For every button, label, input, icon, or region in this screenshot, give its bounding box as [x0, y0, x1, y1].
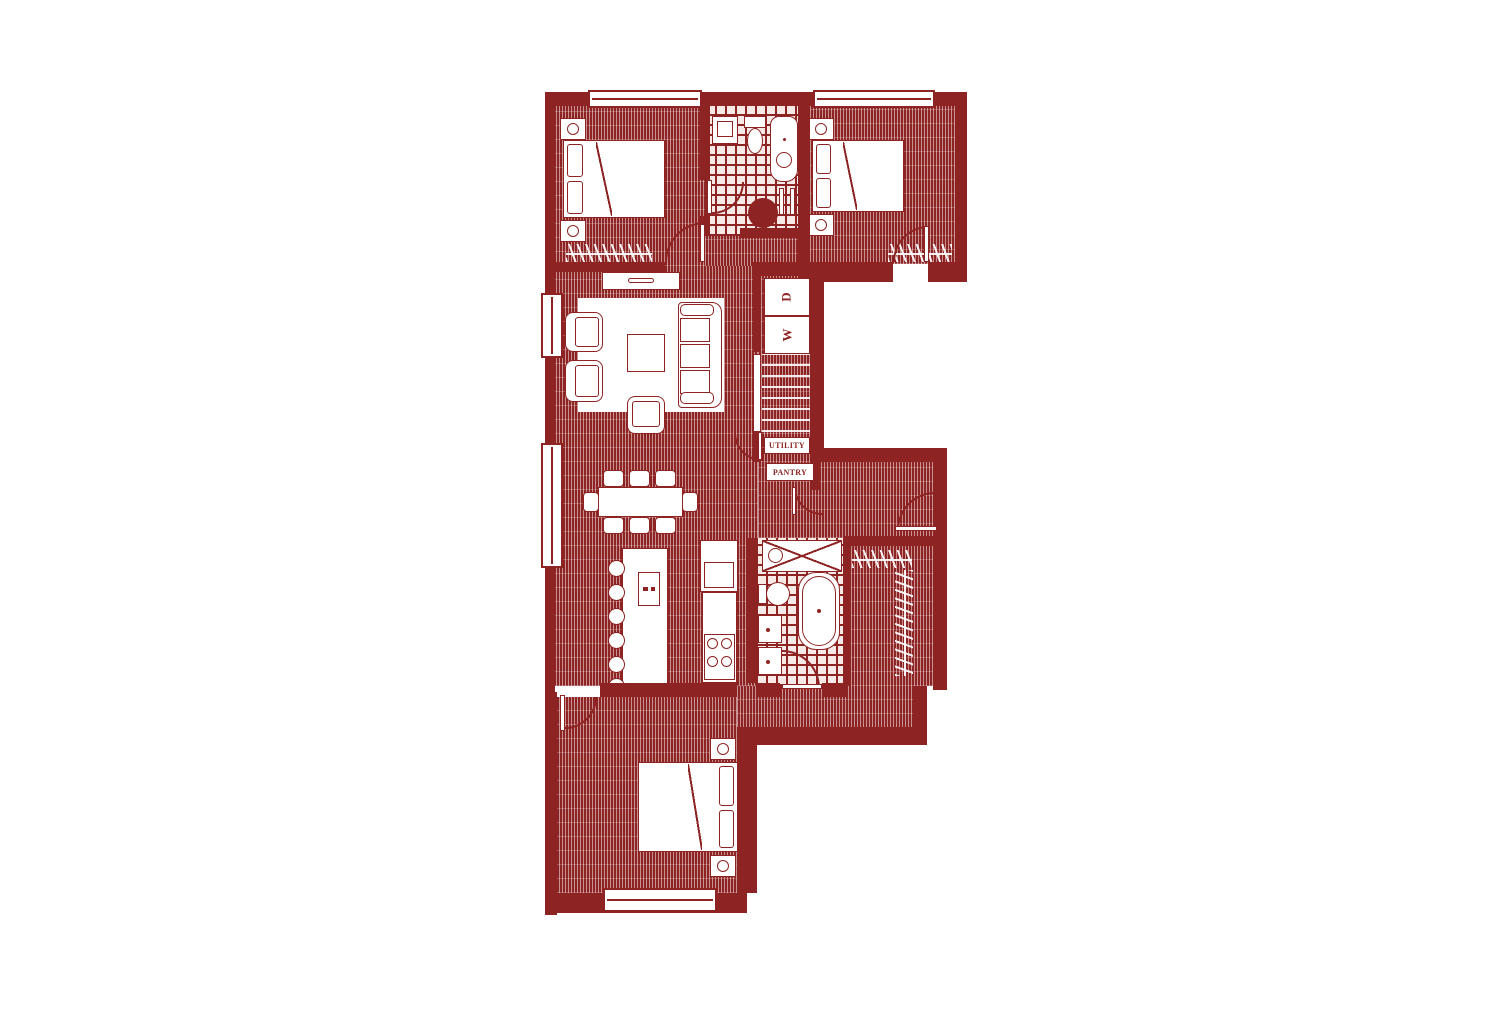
toilet-top-bowl	[747, 128, 763, 154]
wall-ensuite-bottom-a	[756, 683, 780, 697]
door-leaf-master	[560, 695, 565, 731]
coffee-table	[627, 334, 665, 372]
dining-chair-end-left	[583, 492, 599, 512]
burner-2	[721, 638, 732, 649]
lamp-icon	[815, 219, 827, 231]
bed-top-left-fold	[596, 142, 612, 216]
utility-label-box: UTILITY	[764, 437, 810, 454]
dining-chair-top-1	[603, 470, 624, 487]
sofa-cushion-3	[680, 370, 710, 394]
window-bedroom-top-left	[588, 90, 702, 108]
dining-chair-end-right	[682, 492, 698, 512]
wall-bath1-right	[798, 92, 810, 278]
pantry-label-box: PANTRY	[766, 463, 814, 481]
wall-kitchen-master-b	[600, 683, 737, 697]
sofa-cushion-2	[680, 344, 710, 368]
structural-column	[748, 198, 778, 228]
bathtub-top-faucet	[776, 152, 792, 168]
wall-bedroom2-right	[955, 92, 967, 282]
island-sink-tap	[643, 587, 648, 591]
nightstand-m-2	[710, 855, 736, 877]
bed-master-fold	[688, 764, 702, 850]
toilet-ensuite-bowl	[766, 582, 790, 606]
wall-kitchen-master-a	[545, 683, 552, 697]
island-sink-tap2	[651, 587, 655, 591]
floor-plan-canvas: D W UTILITY PANTRY	[0, 0, 1500, 1010]
dining-table	[598, 487, 683, 517]
bathtub-top-drain	[783, 138, 786, 141]
toilet-top-tank	[744, 116, 766, 128]
dining-chair-top-2	[629, 470, 650, 487]
bar-stool-2	[608, 584, 625, 601]
door-leaf-ensuite	[782, 684, 822, 689]
tub-drain	[817, 609, 821, 613]
shower-drain	[768, 548, 783, 563]
wall-bedroom2-bottom-a	[800, 262, 893, 282]
vanity-1-handle	[766, 628, 770, 632]
towel-rail-2	[790, 188, 795, 215]
dryer-label: D	[779, 292, 795, 301]
bar-stool-5	[608, 656, 625, 673]
armchair-1-seat	[575, 317, 599, 347]
bar-stool-4	[608, 632, 625, 649]
lamp-icon	[567, 123, 579, 135]
wall-corridor-bottom	[737, 727, 927, 745]
bathroom-top-sink-basin	[717, 121, 733, 137]
vanity-unit-1	[758, 615, 782, 643]
bed-master-pillow-2	[719, 810, 734, 848]
wall-bedroom2-bottom-b	[928, 262, 967, 282]
nightstand-tl-2	[560, 220, 586, 242]
fridge-inner	[704, 562, 734, 588]
sofa-armrest-bottom	[680, 392, 714, 404]
closet-rail-bedroom-top-left	[566, 244, 652, 262]
hall-closet-shelves	[762, 354, 810, 432]
bed-top-right-fold	[843, 142, 857, 210]
vanity-unit-2	[758, 647, 782, 675]
window-living-upper	[541, 293, 563, 358]
wall-hall-top	[753, 262, 812, 276]
dining-chair-bottom-1	[603, 517, 624, 534]
bathtub-top	[770, 116, 798, 182]
media-console-handle	[628, 278, 654, 283]
wall-corridor-top	[810, 448, 947, 462]
door-leaf-entry	[895, 526, 937, 531]
burner-3	[707, 656, 718, 667]
wall-bath1-bottom-nub	[740, 228, 805, 238]
walk-in-rail-top	[852, 550, 912, 568]
washer-label: W	[779, 329, 795, 342]
wall-wd-left-a	[753, 266, 761, 352]
bar-stool-1	[608, 560, 625, 577]
accent-chair-seat	[632, 401, 660, 427]
sofa-cushion-1	[680, 318, 710, 342]
door-leaf-bathroom-top	[707, 180, 712, 214]
vanity-2-handle	[766, 660, 770, 664]
bed-master-pillow-1	[719, 766, 734, 806]
wall-bath1-left-a	[700, 106, 710, 180]
nightstand-tl-1	[560, 118, 586, 140]
wall-right-lower	[933, 455, 947, 690]
wall-right-step	[913, 686, 927, 730]
washer-box: W	[764, 316, 810, 354]
wall-kitchen-ensuite	[746, 538, 758, 683]
nightstand-tr-1	[808, 118, 834, 140]
kitchen-island	[622, 548, 668, 690]
window-bedroom-top-right	[813, 90, 935, 108]
wall-master-right	[737, 727, 757, 893]
wall-bedroom1-bottom	[545, 262, 665, 272]
door-leaf-pantry	[792, 487, 796, 515]
wall-wd-right	[810, 282, 824, 452]
wall-left-master	[545, 692, 557, 915]
armchair-2-seat	[575, 365, 599, 397]
wall-ensuite-walkin	[843, 538, 851, 686]
bar-stool-3	[608, 608, 625, 625]
window-master-bedroom	[603, 888, 717, 912]
utility-label: UTILITY	[769, 441, 805, 450]
towel-rail-1	[779, 188, 784, 215]
bed-top-right-pillow-2	[816, 178, 831, 208]
dining-chair-bottom-3	[655, 517, 676, 534]
dryer-box: D	[764, 278, 810, 316]
burner-1	[707, 638, 718, 649]
sofa-armrest-top	[680, 304, 714, 316]
bed-top-right-pillow-1	[816, 144, 831, 174]
lamp-icon	[717, 860, 729, 872]
door-leaf-bedroom-top-right	[924, 226, 929, 262]
lamp-icon	[567, 225, 579, 237]
wall-left-upper	[545, 92, 555, 692]
lamp-icon	[717, 743, 729, 755]
pantry-label: PANTRY	[773, 468, 807, 477]
dining-chair-bottom-2	[629, 517, 650, 534]
bed-top-left-pillow-2	[567, 181, 583, 214]
walk-in-rail-right	[895, 570, 913, 676]
lamp-icon	[815, 123, 827, 135]
door-leaf-bedroom-top-left	[700, 224, 705, 262]
nightstand-tr-2	[808, 214, 834, 236]
hall-closet-doors	[753, 354, 761, 432]
burner-4	[721, 656, 732, 667]
bed-top-left-pillow-1	[567, 144, 583, 177]
wall-corridor-walkin	[843, 536, 933, 546]
nightstand-m-1	[710, 738, 736, 760]
dining-chair-top-3	[655, 470, 676, 487]
window-living-lower	[541, 443, 563, 568]
island-sink	[638, 572, 660, 606]
door-leaf-utility	[758, 432, 762, 460]
